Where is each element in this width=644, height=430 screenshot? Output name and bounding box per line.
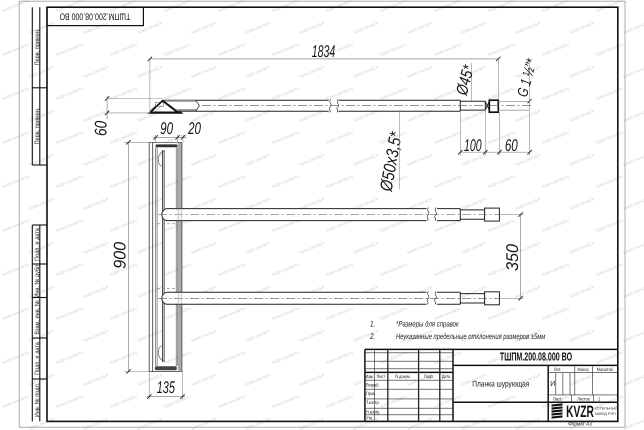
svg-text:Перв. примен.: Перв. примен.	[34, 28, 41, 65]
svg-text:1834: 1834	[312, 42, 335, 61]
svg-text:Инв. № подл.: Инв. № подл.	[34, 383, 41, 418]
svg-text:Масштаб: Масштаб	[597, 367, 613, 372]
svg-text:Лит.: Лит.	[554, 367, 561, 372]
svg-text:Масса: Масса	[577, 367, 588, 372]
svg-text:Планка шурующая: Планка шурующая	[472, 379, 529, 388]
svg-text:60: 60	[92, 120, 111, 136]
svg-text:Лист: Лист	[377, 374, 386, 379]
svg-text:350: 350	[503, 244, 522, 271]
svg-text:КОТЕЛЬНЫЙ: КОТЕЛЬНЫЙ	[595, 405, 618, 410]
svg-text:1: 1	[598, 396, 600, 401]
svg-text:Пров.: Пров.	[366, 391, 376, 396]
svg-text:20: 20	[187, 119, 201, 138]
svg-text:ТШПМ.200.08.000 ВО: ТШПМ.200.08.000 ВО	[500, 351, 572, 364]
svg-text:Т.контр.: Т.контр.	[366, 400, 380, 405]
svg-text:Листов: Листов	[577, 396, 590, 401]
svg-text:И: И	[550, 379, 555, 388]
svg-text:Изм.: Изм.	[365, 374, 373, 379]
svg-text:90: 90	[160, 119, 173, 138]
svg-text:Подп. и дата: Подп. и дата	[34, 228, 41, 261]
svg-text:Разраб.: Разраб.	[366, 382, 380, 387]
svg-text:Лист.: Лист.	[553, 396, 562, 401]
svg-text:60: 60	[505, 136, 518, 155]
svg-text:1.: 1.	[370, 320, 375, 329]
svg-text:Инв. № дубл.: Инв. № дубл.	[34, 263, 41, 298]
svg-text:Подп.: Подп.	[424, 374, 434, 379]
svg-text:Формат А3: Формат А3	[568, 421, 592, 427]
svg-text:N докум.: N докум.	[395, 374, 410, 379]
svg-text:Дата: Дата	[442, 374, 451, 379]
svg-text:ЗАВОД РЭП: ЗАВОД РЭП	[595, 412, 616, 416]
svg-text:Перв. примен.: Перв. примен.	[34, 107, 41, 144]
svg-text:Н.контр.: Н.контр.	[366, 410, 380, 415]
svg-text:900: 900	[111, 241, 130, 268]
svg-text:Подп. и дата: Подп. и дата	[34, 342, 41, 375]
svg-text:135: 135	[157, 378, 176, 397]
svg-text:Утв.: Утв.	[366, 416, 373, 421]
svg-text:KVZR: KVZR	[566, 403, 594, 421]
svg-text:100: 100	[464, 136, 482, 155]
svg-text:*Размеры для справок: *Размеры для справок	[396, 320, 460, 329]
svg-text:Взам. инв. №: Взам. инв. №	[34, 300, 41, 335]
svg-text:2.: 2.	[369, 332, 375, 341]
svg-text:ТШПМ.200.08.000 ВО: ТШПМ.200.08.000 ВО	[60, 10, 131, 21]
svg-text:Неуказанные предельные отклоне: Неуказанные предельные отклонения размер…	[396, 332, 546, 341]
